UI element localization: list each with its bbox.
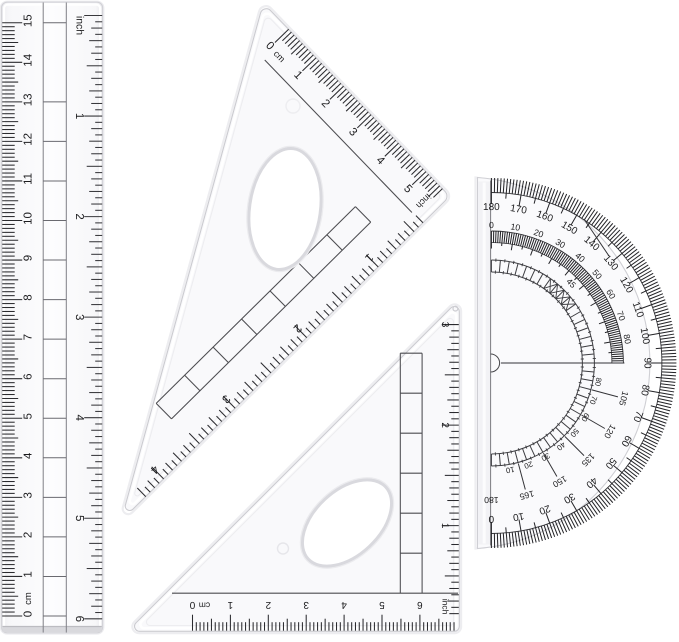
svg-text:0: 0	[189, 599, 195, 610]
svg-text:0: 0	[488, 513, 494, 524]
svg-text:180: 180	[483, 202, 500, 213]
svg-text:7: 7	[23, 334, 35, 340]
svg-text:6: 6	[73, 616, 85, 622]
svg-text:11: 11	[23, 173, 35, 185]
svg-text:inch: inch	[440, 599, 450, 615]
svg-text:5: 5	[73, 515, 85, 521]
svg-text:8: 8	[23, 294, 35, 300]
svg-text:2: 2	[73, 213, 85, 219]
svg-text:5: 5	[379, 599, 385, 610]
svg-text:15: 15	[23, 14, 35, 27]
svg-text:4: 4	[341, 599, 347, 610]
svg-text:2: 2	[265, 599, 271, 610]
svg-text:3: 3	[303, 599, 309, 610]
svg-text:80: 80	[622, 333, 634, 344]
svg-text:0: 0	[489, 220, 494, 230]
svg-text:3: 3	[23, 492, 35, 498]
svg-text:0: 0	[23, 611, 35, 617]
svg-text:cm: cm	[23, 592, 34, 605]
svg-text:cm: cm	[199, 601, 210, 611]
svg-text:9: 9	[23, 255, 35, 261]
svg-text:10: 10	[505, 465, 515, 475]
svg-text:12: 12	[23, 133, 35, 146]
svg-text:3: 3	[73, 314, 85, 320]
svg-text:2: 2	[439, 422, 450, 428]
svg-text:6: 6	[417, 599, 423, 610]
svg-text:1: 1	[439, 523, 450, 529]
svg-text:2: 2	[23, 532, 35, 538]
svg-text:1: 1	[73, 113, 85, 119]
svg-text:1: 1	[23, 571, 35, 577]
svg-text:4: 4	[73, 414, 85, 421]
svg-text:10: 10	[510, 221, 521, 233]
svg-text:14: 14	[23, 53, 35, 66]
svg-text:1: 1	[227, 599, 233, 610]
svg-text:10: 10	[23, 212, 35, 225]
svg-text:80: 80	[593, 377, 603, 387]
svg-text:90: 90	[641, 357, 652, 369]
svg-text:5: 5	[23, 413, 35, 419]
svg-text:13: 13	[23, 93, 35, 106]
svg-text:4: 4	[23, 452, 35, 459]
svg-text:inch: inch	[74, 16, 86, 35]
svg-text:6: 6	[23, 373, 35, 379]
svg-text:180: 180	[484, 495, 499, 505]
svg-text:3: 3	[439, 322, 450, 328]
